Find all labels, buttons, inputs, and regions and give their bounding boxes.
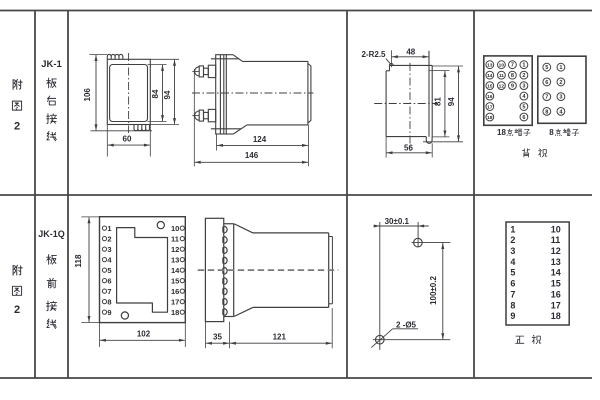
svg-text:60: 60 (123, 135, 132, 144)
svg-text:3: 3 (510, 246, 515, 256)
svg-text:2 -Ø5: 2 -Ø5 (396, 321, 417, 330)
svg-text:18: 18 (497, 128, 506, 137)
svg-text:10: 10 (499, 63, 505, 69)
svg-text:8: 8 (510, 300, 515, 310)
svg-text:5: 5 (107, 266, 111, 275)
svg-text:16: 16 (487, 94, 493, 100)
svg-text:121: 121 (273, 333, 287, 342)
svg-text:4: 4 (107, 255, 112, 264)
svg-text:30±0.1: 30±0.1 (385, 217, 410, 226)
svg-text:8: 8 (107, 297, 111, 306)
svg-text:1: 1 (107, 224, 111, 233)
svg-text:2-R2.5: 2-R2.5 (361, 50, 386, 59)
svg-text:11: 11 (171, 234, 179, 243)
svg-text:17: 17 (487, 105, 493, 111)
svg-text:6: 6 (522, 115, 525, 121)
svg-text:14: 14 (171, 266, 180, 275)
svg-text:5: 5 (510, 268, 515, 278)
svg-text:1: 1 (559, 65, 562, 71)
svg-text:2: 2 (510, 235, 515, 245)
svg-text:124: 124 (253, 135, 267, 144)
svg-text:JK-1: JK-1 (41, 59, 62, 70)
svg-text:146: 146 (245, 151, 259, 160)
svg-text:10: 10 (171, 224, 179, 233)
svg-text:102: 102 (137, 330, 151, 339)
svg-text:81: 81 (434, 97, 443, 106)
svg-text:9: 9 (511, 84, 514, 90)
svg-text:11: 11 (499, 73, 504, 79)
svg-text:JK-1Q: JK-1Q (38, 229, 65, 239)
svg-text:7: 7 (545, 95, 548, 101)
svg-text:14: 14 (551, 268, 561, 278)
svg-text:6: 6 (510, 279, 515, 289)
svg-text:18: 18 (551, 311, 561, 321)
svg-text:3: 3 (107, 245, 111, 254)
svg-text:5: 5 (522, 105, 525, 111)
svg-text:17: 17 (551, 300, 561, 310)
svg-text:12: 12 (171, 245, 179, 254)
svg-text:10: 10 (551, 224, 561, 234)
svg-text:6: 6 (107, 276, 111, 285)
svg-text:4: 4 (510, 257, 515, 267)
svg-text:2: 2 (14, 304, 20, 316)
svg-text:2: 2 (522, 73, 525, 79)
svg-text:8: 8 (511, 73, 514, 79)
svg-text:118: 118 (74, 254, 83, 267)
svg-text:2: 2 (107, 234, 111, 243)
svg-text:100±0.2: 100±0.2 (429, 276, 438, 305)
svg-text:8: 8 (549, 128, 554, 137)
svg-text:84: 84 (151, 89, 160, 98)
svg-text:1: 1 (510, 224, 515, 234)
svg-text:16: 16 (551, 289, 561, 299)
svg-text:13: 13 (551, 257, 561, 267)
svg-text:35: 35 (213, 333, 222, 342)
svg-text:16: 16 (171, 287, 179, 296)
svg-text:12: 12 (551, 246, 561, 256)
svg-text:15: 15 (487, 84, 493, 90)
svg-text:2: 2 (14, 121, 20, 133)
svg-text:2: 2 (559, 80, 562, 86)
svg-text:18: 18 (171, 308, 179, 317)
svg-text:48: 48 (406, 47, 415, 56)
svg-text:7: 7 (510, 289, 515, 299)
svg-text:56: 56 (404, 143, 413, 152)
svg-text:94: 94 (447, 97, 456, 106)
svg-text:7: 7 (511, 63, 514, 69)
svg-text:17: 17 (171, 297, 179, 306)
svg-text:8: 8 (545, 109, 548, 115)
svg-text:94: 94 (163, 90, 172, 99)
svg-text:12: 12 (499, 84, 505, 90)
svg-text:14: 14 (487, 73, 493, 79)
svg-text:7: 7 (107, 287, 111, 296)
svg-text:6: 6 (545, 80, 548, 86)
svg-text:13: 13 (171, 255, 179, 264)
svg-text:3: 3 (522, 84, 525, 90)
svg-text:9: 9 (510, 311, 515, 321)
svg-text:15: 15 (551, 279, 561, 289)
svg-text:1: 1 (522, 63, 525, 69)
svg-text:3: 3 (559, 95, 562, 101)
svg-text:18: 18 (487, 115, 493, 121)
svg-text:5: 5 (545, 65, 548, 71)
svg-text:13: 13 (487, 63, 493, 69)
svg-text:106: 106 (83, 88, 92, 102)
svg-text:15: 15 (171, 276, 179, 285)
svg-text:11: 11 (551, 235, 561, 245)
svg-text:9: 9 (107, 308, 111, 317)
